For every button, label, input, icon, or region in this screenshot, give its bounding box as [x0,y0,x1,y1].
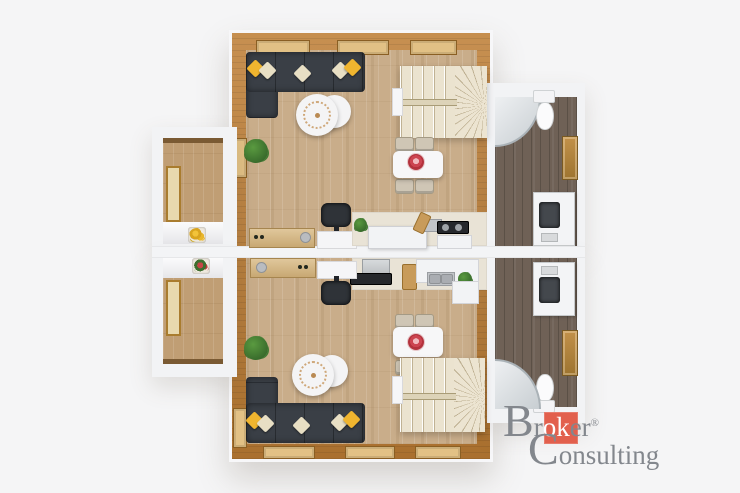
stair-winders [455,66,487,138]
desk [317,231,357,249]
dining-chair [415,179,434,194]
flower-pot-red [192,258,210,274]
flower-pot-yellow [188,227,206,243]
logo-letter-c: C [528,423,559,474]
kitchen-cabinet [437,235,472,249]
potted-plant [244,139,268,163]
window-sill [263,446,315,459]
washer-drum [539,202,560,228]
stair-railing [400,99,457,106]
cooking-pot [442,224,449,231]
office-chair [321,203,351,227]
winder-staircase [400,66,487,138]
table-flower-centerpiece [408,154,424,170]
floor-plan-render: Broker® Consulting [0,0,740,493]
sideboard-sink [256,262,267,273]
coffee-table-decorated [292,354,334,396]
balcony-window [166,166,181,222]
dining-chair [415,137,434,152]
cutting-board [402,264,417,290]
stair-railing [400,393,456,400]
dining-chair [395,137,414,152]
window-sill [233,408,247,448]
window-sill [415,446,461,459]
kitchen-plant [354,218,367,232]
logo-line2: Consulting [528,426,659,472]
washer-control-panel [541,266,558,275]
toilet [536,102,554,130]
sideboard-item [260,235,264,239]
sink-basin [429,274,441,284]
sideboard-item [304,265,308,269]
stair-winders [454,358,485,432]
sideboard-item [298,265,302,269]
balcony-window [166,280,181,336]
balcony-beam [163,138,223,143]
stair-side-shelf [392,88,403,116]
sideboard-item [254,235,258,239]
table-flower-centerpiece [408,334,424,350]
balcony-beam [163,359,223,364]
cooking-pot [455,224,462,231]
winder-staircase [400,358,485,432]
washer-control-panel [541,233,558,242]
bathroom-door [562,136,578,180]
coffee-table-decorated [296,94,338,136]
washer-drum [539,277,560,303]
stair-side-shelf [392,376,403,404]
broker-consulting-logo: Broker® Consulting [503,405,718,485]
potted-plant [244,336,268,360]
window-sill [410,40,457,55]
office-chair [321,281,351,305]
sideboard-sink [300,232,311,243]
dining-chair [395,179,414,194]
window-sill [345,446,395,459]
kitchen-cabinet [452,281,479,304]
bathroom-door [562,330,578,376]
